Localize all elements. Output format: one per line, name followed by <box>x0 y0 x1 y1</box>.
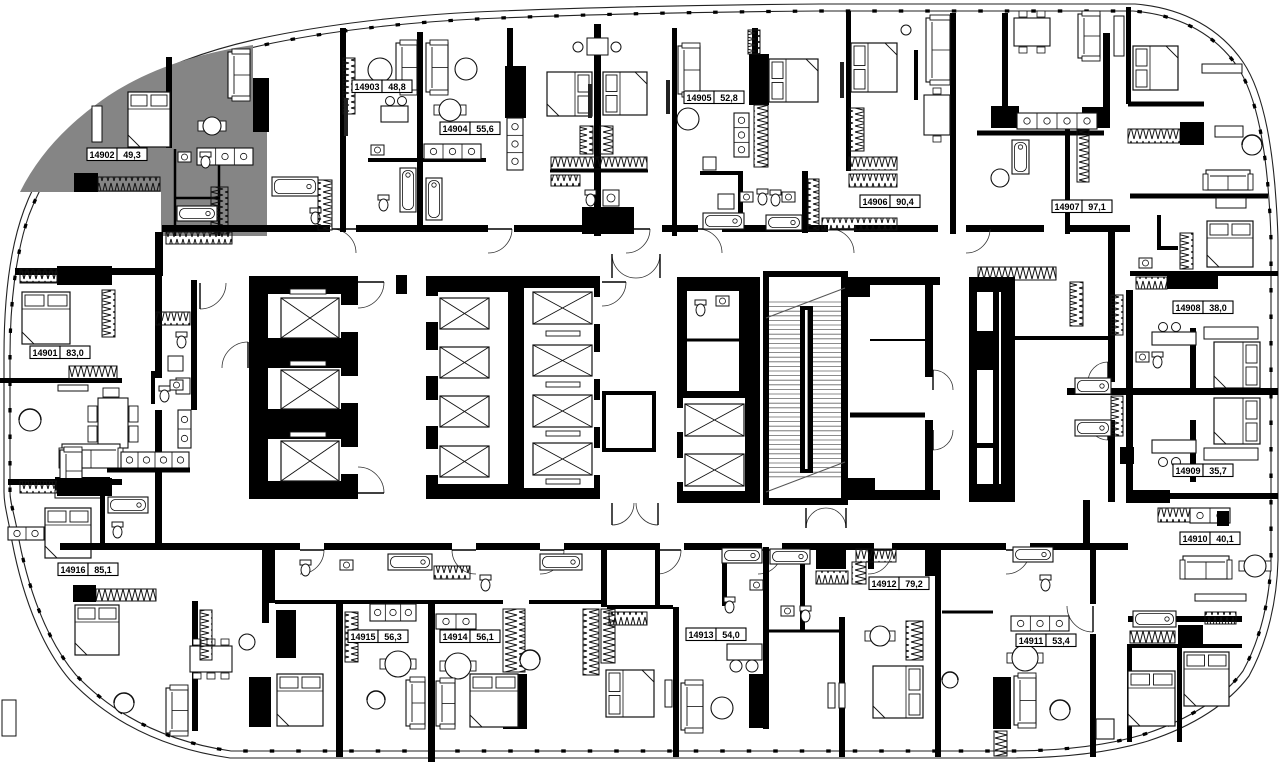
svg-text:85,1: 85,1 <box>94 565 112 575</box>
svg-text:52,8: 52,8 <box>720 93 738 103</box>
svg-text:14903: 14903 <box>354 82 379 92</box>
svg-text:54,0: 54,0 <box>722 630 740 640</box>
svg-text:14909: 14909 <box>1175 466 1200 476</box>
svg-text:40,1: 40,1 <box>1216 534 1234 544</box>
svg-text:14901: 14901 <box>32 348 57 358</box>
svg-text:14911: 14911 <box>1019 636 1044 646</box>
svg-text:35,7: 35,7 <box>1209 466 1227 476</box>
svg-text:38,0: 38,0 <box>1209 303 1227 313</box>
svg-text:97,1: 97,1 <box>1088 202 1106 212</box>
svg-text:83,0: 83,0 <box>66 348 84 358</box>
svg-text:55,6: 55,6 <box>476 124 494 134</box>
svg-text:14913: 14913 <box>688 630 713 640</box>
svg-text:14915: 14915 <box>350 632 375 642</box>
svg-text:14906: 14906 <box>862 197 887 207</box>
svg-text:14908: 14908 <box>1175 303 1200 313</box>
svg-text:14912: 14912 <box>871 579 896 589</box>
svg-text:49,3: 49,3 <box>123 150 141 160</box>
svg-text:90,4: 90,4 <box>896 197 914 207</box>
svg-text:14907: 14907 <box>1054 202 1079 212</box>
svg-text:56,1: 56,1 <box>476 632 494 642</box>
svg-text:14905: 14905 <box>686 93 711 103</box>
svg-text:14902: 14902 <box>89 150 114 160</box>
svg-text:53,4: 53,4 <box>1052 636 1070 646</box>
svg-text:79,2: 79,2 <box>905 579 923 589</box>
svg-text:14910: 14910 <box>1182 534 1207 544</box>
svg-text:14914: 14914 <box>442 632 467 642</box>
svg-text:14904: 14904 <box>442 124 467 134</box>
svg-text:56,3: 56,3 <box>384 632 402 642</box>
svg-text:14916: 14916 <box>60 565 85 575</box>
svg-text:48,8: 48,8 <box>388 82 406 92</box>
